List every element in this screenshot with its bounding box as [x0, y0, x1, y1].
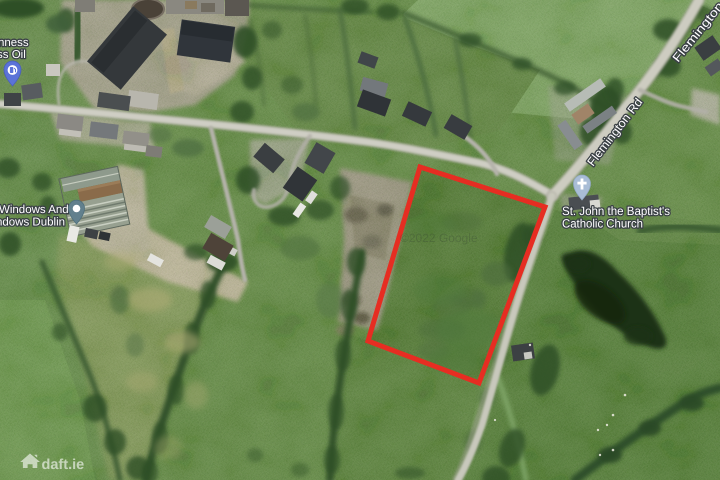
- svg-text:nness: nness: [0, 37, 29, 49]
- svg-text:ss Oil: ss Oil: [0, 49, 26, 61]
- svg-text:©2022 Google: ©2022 Google: [400, 231, 478, 245]
- svg-text:Windows And: Windows And: [0, 204, 69, 216]
- svg-text:Catholic Church: Catholic Church: [562, 217, 643, 231]
- svg-text:daft.ie: daft.ie: [42, 457, 85, 473]
- svg-text:ndows Dublin: ndows Dublin: [0, 217, 65, 229]
